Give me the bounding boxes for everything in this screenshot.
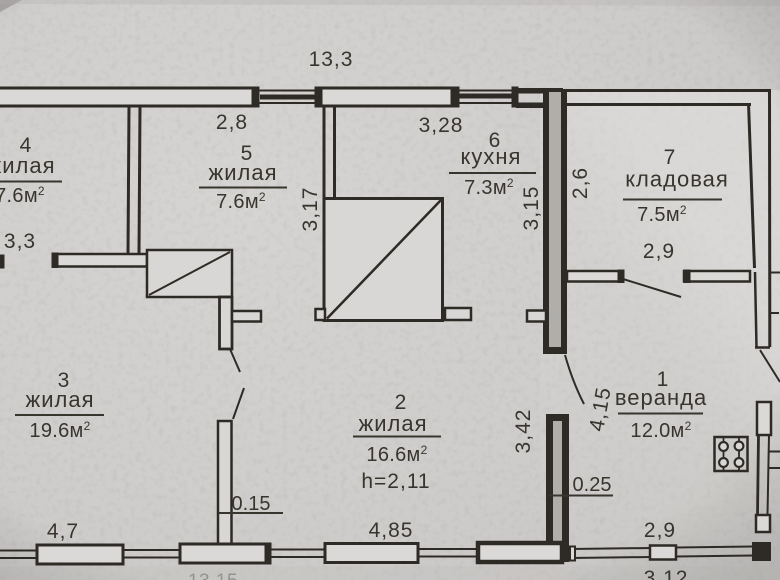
svg-text:2,6: 2,6 [569, 167, 592, 199]
svg-text:h=2,11: h=2,11 [361, 470, 430, 493]
svg-text:4,7: 4,7 [47, 520, 79, 543]
svg-text:жилая: жилая [0, 153, 56, 178]
svg-text:3,17: 3,17 [299, 187, 322, 232]
svg-text:16.6м2: 16.6м2 [366, 443, 427, 466]
svg-text:веранда: веранда [615, 385, 707, 410]
svg-text:0.25: 0.25 [573, 474, 612, 496]
svg-text:19.6м2: 19.6м2 [29, 419, 90, 442]
svg-text:3,15: 3,15 [520, 186, 543, 231]
svg-text:3,28: 3,28 [419, 114, 464, 137]
svg-text:7.5м2: 7.5м2 [637, 203, 687, 226]
svg-text:2,9: 2,9 [643, 240, 675, 263]
svg-text:12.0м2: 12.0м2 [630, 419, 691, 442]
svg-text:2,9: 2,9 [644, 519, 676, 542]
svg-text:3,42: 3,42 [512, 409, 535, 454]
svg-text:2,8: 2,8 [216, 111, 248, 134]
svg-text:0.15: 0.15 [232, 493, 271, 515]
svg-text:13,15: 13,15 [188, 571, 238, 580]
svg-text:жилая: жилая [359, 411, 428, 436]
svg-text:3,3: 3,3 [4, 230, 36, 253]
svg-text:7.3м2: 7.3м2 [464, 176, 514, 199]
svg-text:4,85: 4,85 [369, 519, 414, 542]
svg-text:жилая: жилая [26, 387, 95, 412]
svg-text:жилая: жилая [209, 160, 278, 185]
svg-text:7.6м2: 7.6м2 [216, 190, 266, 213]
svg-text:13,3: 13,3 [309, 48, 354, 71]
svg-text:кухня: кухня [461, 144, 522, 169]
svg-text:3,12: 3,12 [644, 567, 689, 580]
svg-text:кладовая: кладовая [625, 167, 729, 192]
